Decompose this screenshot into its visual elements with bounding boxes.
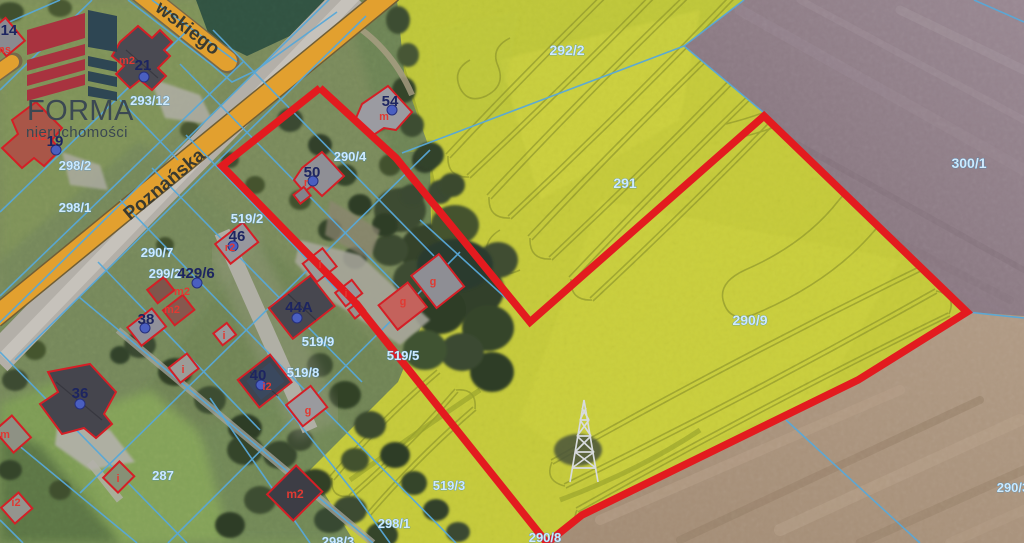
svg-text:298/1: 298/1 xyxy=(378,516,411,531)
svg-text:519/9: 519/9 xyxy=(302,334,335,349)
svg-text:290/7: 290/7 xyxy=(141,245,174,260)
svg-text:i2: i2 xyxy=(262,381,271,393)
svg-text:g: g xyxy=(430,276,437,288)
svg-text:300/1: 300/1 xyxy=(951,155,986,171)
svg-text:290/8: 290/8 xyxy=(529,530,562,543)
svg-text:ms: ms xyxy=(0,44,11,56)
svg-text:290/9: 290/9 xyxy=(732,312,767,328)
svg-text:m2: m2 xyxy=(119,55,135,67)
svg-text:r: r xyxy=(304,177,309,189)
svg-text:m: m xyxy=(379,111,389,123)
svg-text:nieruchomości: nieruchomości xyxy=(26,124,128,141)
svg-text:38: 38 xyxy=(138,311,155,328)
svg-text:298/2: 298/2 xyxy=(59,158,92,173)
svg-text:54: 54 xyxy=(382,93,399,110)
svg-text:g: g xyxy=(400,296,407,308)
svg-text:298/1: 298/1 xyxy=(59,200,92,215)
svg-text:290/3: 290/3 xyxy=(997,480,1024,495)
svg-text:519/5: 519/5 xyxy=(387,348,420,363)
svg-text:i: i xyxy=(181,364,184,376)
svg-text:290/4: 290/4 xyxy=(334,149,367,164)
svg-text:36: 36 xyxy=(72,385,89,402)
svg-text:519/8: 519/8 xyxy=(287,365,320,380)
svg-text:m2: m2 xyxy=(286,487,304,501)
svg-text:429/6: 429/6 xyxy=(177,265,215,282)
svg-text:i: i xyxy=(318,259,321,271)
svg-text:m2: m2 xyxy=(164,304,180,316)
svg-text:i2: i2 xyxy=(11,497,20,509)
svg-text:g: g xyxy=(305,405,312,417)
svg-text:i: i xyxy=(222,330,225,342)
svg-text:298/3: 298/3 xyxy=(322,534,355,543)
svg-text:14: 14 xyxy=(1,22,18,39)
svg-text:r2: r2 xyxy=(225,242,235,254)
svg-text:i: i xyxy=(344,288,347,300)
svg-text:m: m xyxy=(0,429,10,441)
svg-text:292/2: 292/2 xyxy=(549,42,584,58)
svg-text:m2: m2 xyxy=(174,286,190,298)
svg-text:21: 21 xyxy=(135,57,152,74)
svg-text:FORMA: FORMA xyxy=(27,95,134,127)
svg-text:44A: 44A xyxy=(285,299,313,316)
svg-text:i: i xyxy=(116,473,119,485)
svg-text:519/3: 519/3 xyxy=(433,478,466,493)
svg-text:293/12: 293/12 xyxy=(130,93,170,108)
svg-text:519/2: 519/2 xyxy=(231,211,264,226)
svg-text:291: 291 xyxy=(613,175,637,191)
svg-text:287: 287 xyxy=(152,468,174,483)
